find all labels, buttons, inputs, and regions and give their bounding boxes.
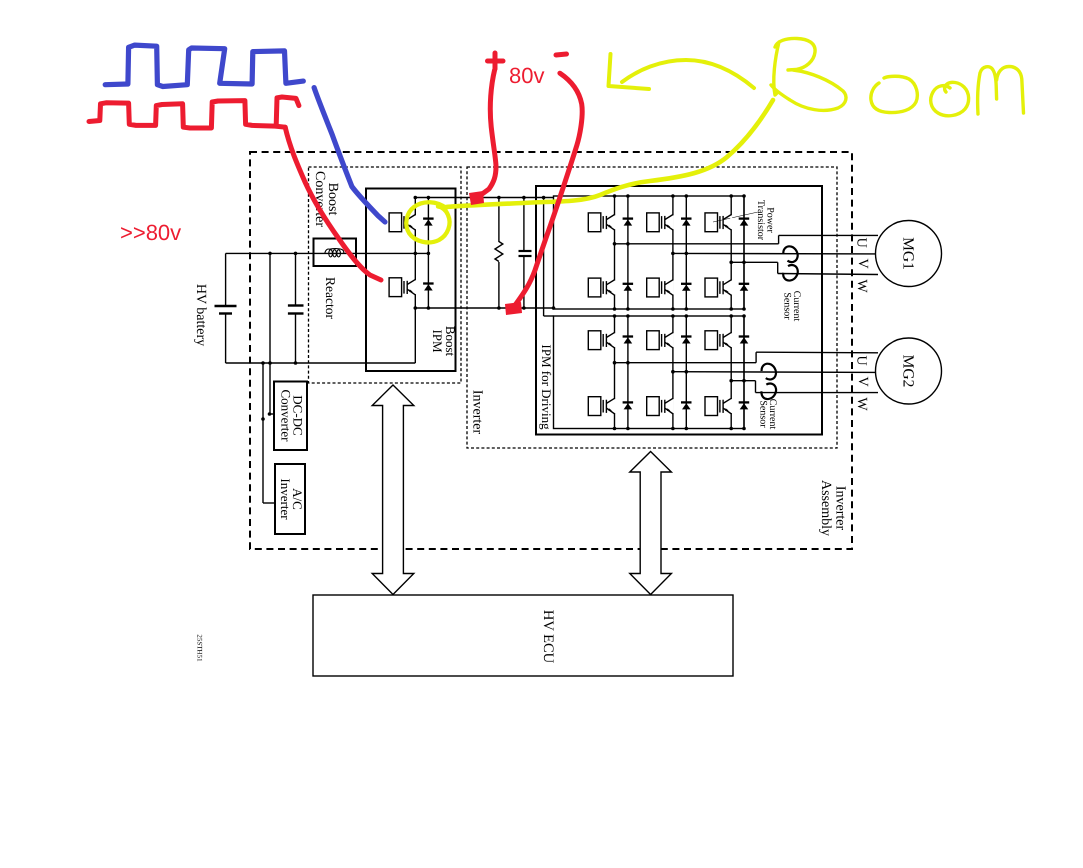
svg-text:U: U — [854, 355, 869, 365]
svg-text:HV battery: HV battery — [193, 284, 208, 346]
svg-text:W: W — [854, 279, 869, 293]
svg-text:Inverter: Inverter — [833, 486, 848, 531]
svg-text:HV ECU: HV ECU — [540, 610, 556, 664]
svg-text:IPM: IPM — [430, 329, 445, 353]
svg-text:Transistor: Transistor — [755, 200, 766, 241]
svg-text:W: W — [854, 397, 869, 411]
svg-text:Inverter: Inverter — [470, 390, 485, 435]
svg-text:Converter: Converter — [279, 390, 294, 443]
svg-text:Reactor: Reactor — [323, 277, 338, 319]
svg-text:V: V — [855, 376, 870, 386]
svg-text:>>80v: >>80v — [120, 220, 181, 245]
svg-text:25STH51: 25STH51 — [196, 634, 204, 662]
svg-text:MG2: MG2 — [900, 355, 917, 388]
svg-text:IPM for Driving: IPM for Driving — [539, 344, 554, 430]
svg-text:MG1: MG1 — [900, 237, 917, 270]
svg-text:V: V — [855, 258, 870, 268]
svg-text:U: U — [854, 238, 869, 248]
svg-text:Sensor: Sensor — [758, 400, 769, 428]
svg-text:Inverter: Inverter — [278, 478, 293, 520]
svg-text:80v: 80v — [509, 63, 544, 88]
svg-text:Assembly: Assembly — [818, 480, 833, 536]
svg-text:Sensor: Sensor — [782, 292, 793, 320]
